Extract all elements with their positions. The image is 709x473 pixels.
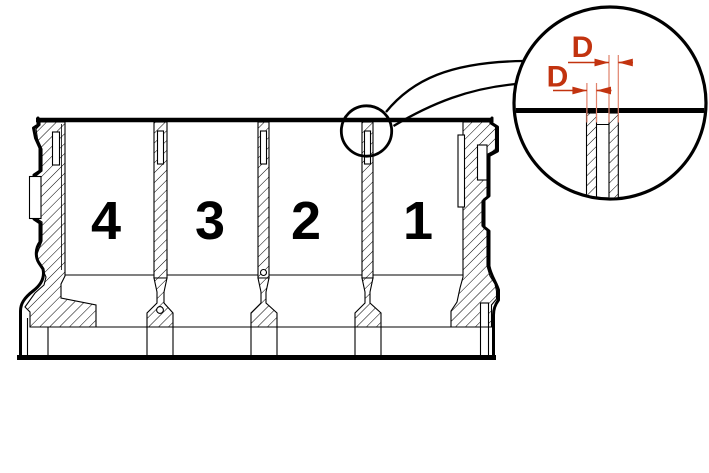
detail-view: D D [514,7,707,200]
coolant-slot [365,131,371,164]
coolant-slot [53,132,60,165]
detail-wall-left-rib [587,113,597,200]
foot-drilling [157,307,164,314]
wall-foot [251,278,277,327]
left-wall-hatch [25,122,96,327]
coolant-slot [158,131,164,164]
cylinder-label-4: 4 [91,191,121,251]
wall-foot [147,278,173,327]
engine-block-section: 4 3 2 1 [17,118,499,358]
coolant-slot [261,131,267,164]
flange-strip [481,303,489,356]
stem-drilling [261,270,267,276]
dimension-label-lower: D [547,61,569,94]
detail-wall-right-rib [609,113,618,200]
cylinder-label-3: 3 [195,191,225,251]
coolant-slot [458,135,465,207]
inter-cylinder-wall-3-2 [251,122,277,356]
cylinder-block-diagram: 4 3 2 1 [0,0,709,473]
left-outer-wall [21,118,97,356]
inter-cylinder-wall-4-3 [147,122,173,356]
dimension-label-upper: D [572,31,594,64]
cylinder-label-1: 1 [403,191,433,251]
side-boss-recess [478,145,488,180]
cylinder-label-2: 2 [291,191,321,251]
side-boss-pad [30,177,42,219]
diagram-canvas: 4 3 2 1 [0,0,709,473]
wall-foot [355,278,381,327]
right-outer-wall [451,118,499,356]
